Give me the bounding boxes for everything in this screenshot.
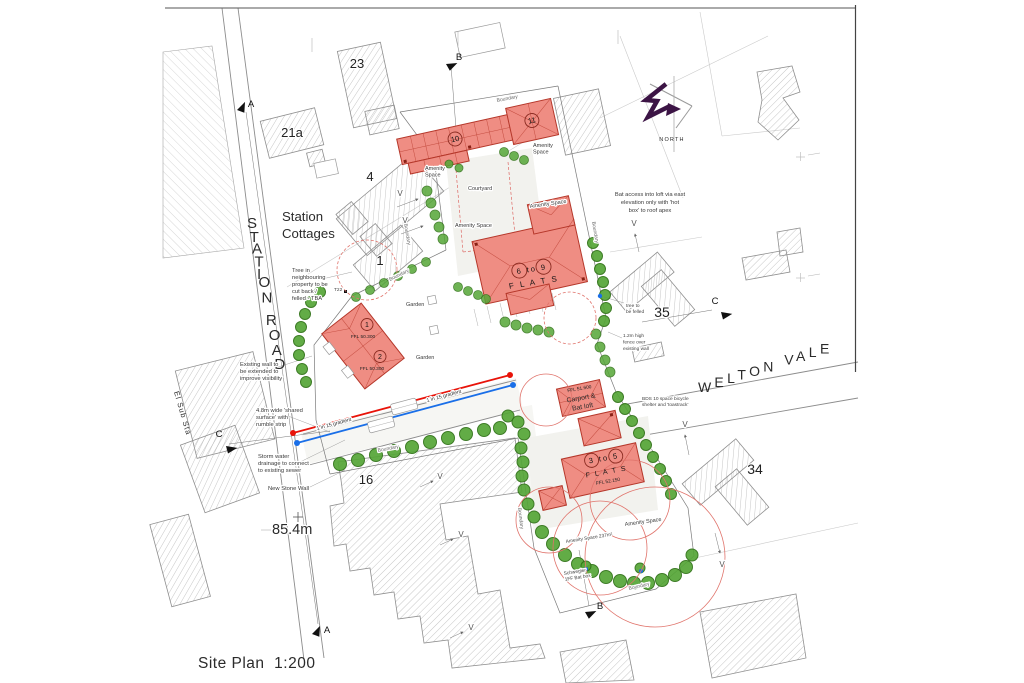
north-arrow-head (666, 103, 681, 116)
note-new-stone-wall: New Stone Wall (268, 486, 309, 492)
v-label-5: V (468, 623, 474, 632)
block-left-edge (150, 514, 211, 606)
plot-21a-label: 21a (281, 125, 303, 140)
section-a-bottom-letter: A (324, 625, 331, 636)
plot2-number: 2 (378, 354, 382, 361)
plot1-ffl: FFL 50.300 (351, 334, 376, 340)
building-east-of-site (553, 89, 610, 155)
section-b-bottom-letter: B (597, 601, 603, 612)
v-label-3: V (437, 472, 443, 481)
amenity-label-5: Amenity Space (624, 517, 661, 528)
tree-row-southeast-boundary (536, 526, 699, 590)
note-fence: 1.2m highfence overexisting wall (623, 333, 649, 352)
north-label: NORTH (659, 137, 684, 143)
grid-cross-1 (796, 152, 820, 161)
plot1-number: 1 (365, 322, 369, 329)
section-b-top-letter: B (456, 52, 462, 63)
site-plan-canvas: 10 11 (0, 0, 1024, 683)
blue-marker-1 (598, 294, 602, 298)
section-a-top-letter: A (248, 99, 255, 110)
courtyard-label: Courtyard (468, 186, 492, 192)
section-c-left-letter: C (216, 429, 223, 440)
plot-23-label: 23 (350, 56, 364, 71)
note-bat-access: Bat access into loft via eastelevation o… (615, 192, 686, 214)
v-label-8: V (631, 219, 637, 228)
building-bottom-right (700, 594, 806, 678)
embankment-west (163, 46, 244, 258)
plot-34-label: 34 (747, 461, 763, 477)
plot2-ffl: FFL 50.300 (360, 366, 385, 372)
spot-height-label: 85.4m (272, 522, 312, 538)
garden-label-2: Garden (416, 355, 434, 361)
section-c-right-arrow (718, 309, 732, 322)
section-c-right-letter: C (712, 296, 719, 307)
garden-label-1: Garden (406, 302, 424, 308)
boundary-label-5: Boundary (516, 508, 525, 530)
building-bottom-center (560, 640, 634, 683)
v-label-6: V (682, 420, 688, 429)
v-label-2: V (402, 216, 408, 225)
note-bicycle: BDS 10 space bicycleshelter and 'toastra… (642, 396, 689, 408)
plot-4-label: 4 (366, 169, 373, 184)
plot-35-label: 35 (654, 304, 670, 320)
note-storm-water: Storm waterdrainage to connectto existin… (258, 454, 309, 474)
welton-vale-label: WELTON VALE (693, 336, 838, 400)
v-label-1: V (397, 189, 403, 198)
site-plan-sheet: 10 11 (0, 0, 1024, 683)
benchmark-cross (293, 512, 303, 522)
v-label-4: V (458, 530, 464, 539)
grid-cross-2 (796, 273, 820, 282)
north-arrow-glyph (646, 84, 670, 117)
section-b-bottom-arrow (584, 609, 596, 620)
plot-16-label: 16 (359, 472, 373, 487)
amenity-label-3: Amenity Space (455, 223, 492, 229)
plot-1-label: 1 (376, 253, 383, 268)
station-road-west-edge (222, 8, 304, 660)
tree-tag-t22: T22 (334, 287, 343, 293)
sheet-title: Site Plan 1:200 (198, 655, 315, 672)
section-a-bottom-arrow (311, 626, 325, 639)
building-plots-1-2 (316, 303, 404, 393)
building-right-edge (777, 228, 803, 256)
tree-row-east-of-flats (588, 238, 616, 378)
amenity-label-2: AmenitySpace (533, 143, 553, 156)
note-shared-surface: 4.8m wide 'sharedsurface' withrumble str… (256, 408, 303, 428)
v-label-7: V (719, 560, 725, 569)
amenity-label-1: AmenitySpace (425, 166, 445, 179)
north-arrow: NORTH (646, 76, 692, 152)
building-11: 11 (506, 98, 559, 144)
note-existing-wall: Existing wall tobe extended toimprove vi… (240, 362, 282, 382)
station-cottages-label: StationCottages (282, 209, 335, 241)
